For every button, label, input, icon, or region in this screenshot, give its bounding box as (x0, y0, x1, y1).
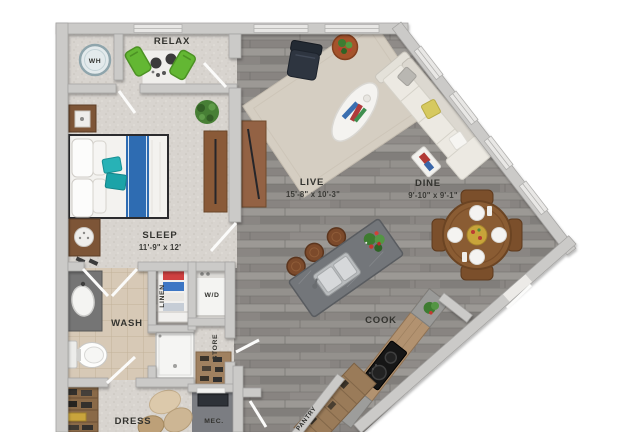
towel-gray (163, 303, 184, 311)
window (325, 25, 379, 33)
label-relax: RELAX (154, 36, 190, 47)
towel-white (163, 293, 184, 301)
wall-interior (140, 84, 237, 93)
label-live-dims: 15'-8" x 10'-3" (286, 190, 340, 199)
wall-interior (138, 262, 233, 271)
toilet (64, 341, 107, 368)
desk-item (151, 58, 162, 69)
label-sleep-dims: 11'-9" x 12' (139, 243, 181, 252)
label-store: STORE (212, 334, 219, 360)
pillow (72, 179, 93, 217)
label-cook: COOK (365, 315, 397, 326)
plant-bedroom (195, 100, 219, 124)
wall-wh-relax (114, 34, 123, 80)
label-linen: LINEN (159, 284, 166, 307)
label-sleep: SLEEP (142, 230, 177, 241)
plate (470, 206, 485, 221)
towel-blue (163, 282, 184, 291)
wall-interior (148, 271, 156, 333)
label-dine-dims: 9'-10" x 9'-1" (408, 191, 458, 200)
drain (173, 364, 177, 368)
wall-interior (68, 378, 108, 387)
label-mec: MEC. (204, 418, 223, 425)
label-wash: WASH (111, 318, 143, 329)
mechanical-unit (198, 394, 228, 406)
label-wd: W/D (204, 292, 219, 299)
pouf-plant-table (333, 35, 358, 60)
shower (156, 332, 194, 378)
teal-pillow (105, 173, 127, 191)
bed (69, 135, 168, 218)
plate (470, 250, 485, 265)
floorplan-page: WH RELAX SLEEP 11'-9" x 12' LIVE 15'-8" … (0, 0, 640, 432)
wall-interior (148, 325, 194, 332)
centerpiece-bowl (467, 225, 487, 245)
plate (492, 228, 507, 243)
gold-item (66, 413, 86, 421)
floorplan-svg: WH RELAX SLEEP 11'-9" x 12' LIVE 15'-8" … (0, 0, 640, 432)
label-live: LIVE (300, 177, 324, 188)
wall-interior (68, 262, 84, 271)
shower-head (159, 335, 162, 338)
wall-hall (233, 366, 243, 432)
wall-exterior-left (56, 23, 68, 432)
plate (448, 228, 463, 243)
label-dine: DINE (415, 178, 441, 189)
mec-door (197, 388, 225, 393)
wall-interior (68, 84, 116, 93)
label-dress: DRESS (115, 416, 152, 427)
wall-interior (136, 378, 194, 387)
wall-hall-stub (243, 388, 261, 397)
label-wh: WH (89, 58, 102, 65)
wall-interior (225, 262, 235, 338)
wall-interior (229, 34, 241, 58)
bed-runner (126, 136, 149, 217)
towel-red (163, 271, 184, 280)
faucet (81, 282, 85, 286)
teal-pillow (102, 157, 122, 174)
window (254, 25, 308, 33)
pillow (93, 179, 106, 213)
wall-sleep-live (229, 88, 241, 222)
pillow (72, 139, 93, 177)
window (134, 25, 182, 33)
